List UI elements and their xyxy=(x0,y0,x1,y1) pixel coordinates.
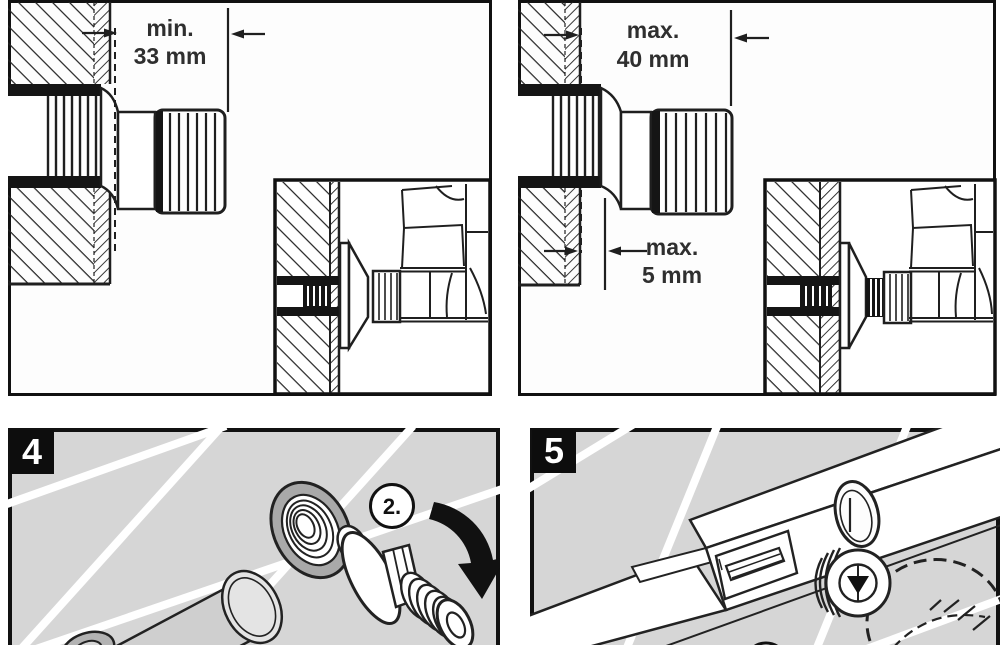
step-badge-4: 4 xyxy=(10,430,54,474)
instruction-diagram: min. 33 mm xyxy=(0,0,1000,645)
wall-socket-bore xyxy=(8,84,101,188)
panel-step-5: 5 xyxy=(526,404,1000,645)
exposed-thread xyxy=(866,278,884,317)
step-4-number: 4 xyxy=(22,431,42,472)
instruction-sheet: min. 33 mm xyxy=(0,0,1000,645)
step-badge-5: 5 xyxy=(532,430,576,473)
step-5-number: 5 xyxy=(544,430,564,471)
min-depth-label-line1: min. xyxy=(146,15,193,41)
inset-detail-bare-wall xyxy=(275,180,490,394)
tile-gap-label-line1: max. xyxy=(646,234,698,260)
tile-gap-label-line2: 5 mm xyxy=(642,262,702,288)
inset-detail-tiled-wall xyxy=(765,180,995,394)
callout-2-label: 2. xyxy=(383,494,401,519)
panel-min-depth: min. 33 mm xyxy=(8,2,491,395)
max-depth-label-line2: 40 mm xyxy=(617,46,690,72)
panel-step-4: 2. 4 xyxy=(4,426,506,645)
min-depth-label-line2: 33 mm xyxy=(134,43,207,69)
wall-socket-bore xyxy=(518,84,601,188)
max-depth-label-line1: max. xyxy=(627,17,679,43)
union-nut xyxy=(373,271,400,322)
union-nut xyxy=(884,272,911,323)
panel-max-depth: max. 40 mm max. 5 mm xyxy=(518,2,995,395)
callout-2: 2. xyxy=(371,485,414,528)
